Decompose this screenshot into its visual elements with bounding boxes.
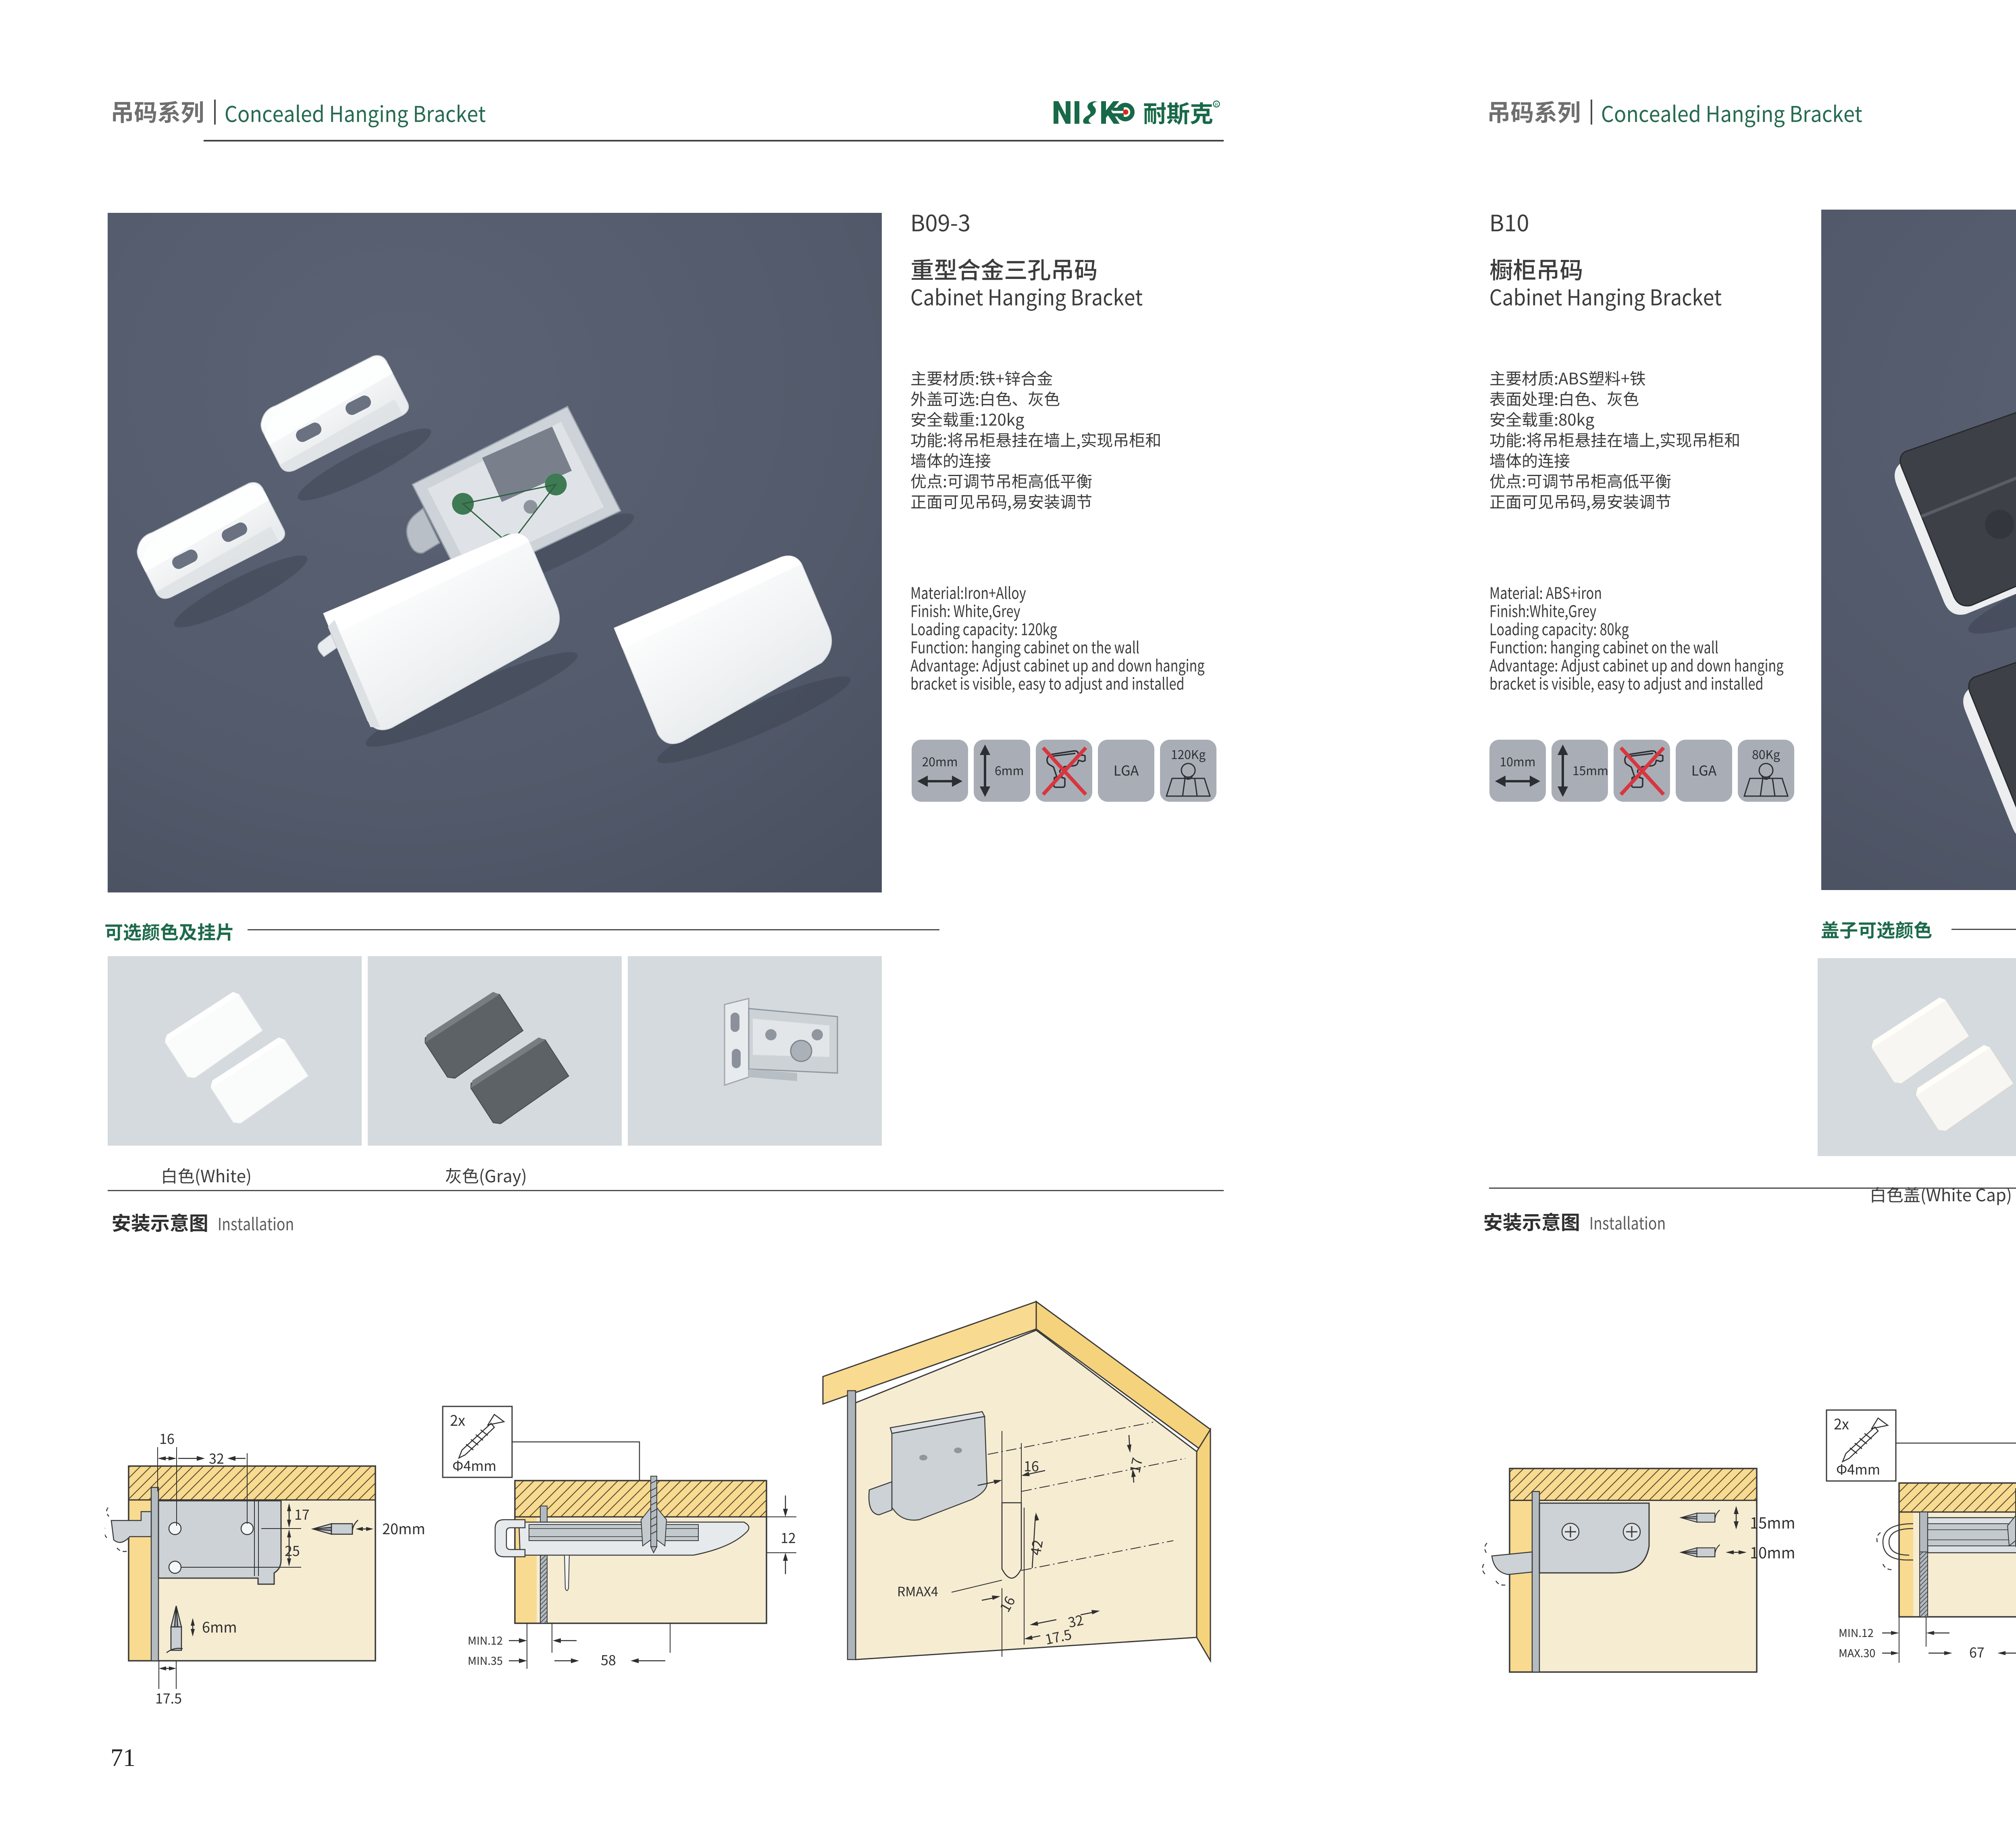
svg-text:R: R [1215,102,1218,107]
